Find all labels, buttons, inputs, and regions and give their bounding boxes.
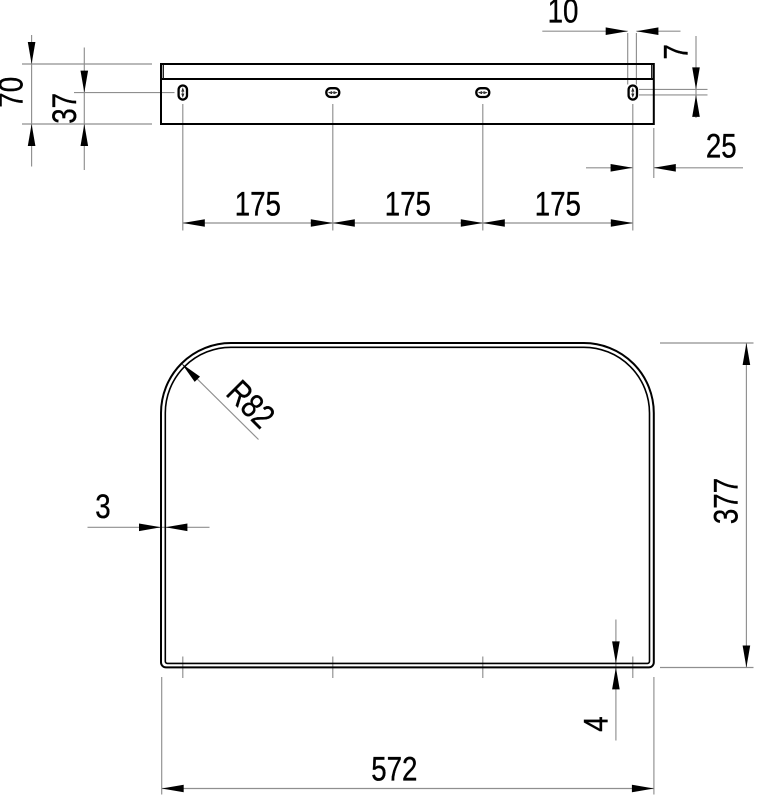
svg-text:7: 7	[657, 44, 695, 59]
svg-text:3: 3	[95, 487, 110, 525]
svg-text:R82: R82	[219, 373, 282, 436]
svg-text:10: 10	[548, 0, 579, 30]
svg-text:175: 175	[235, 185, 281, 223]
svg-text:70: 70	[0, 77, 30, 108]
svg-text:37: 37	[45, 93, 83, 124]
svg-text:4: 4	[577, 716, 615, 731]
svg-text:25: 25	[706, 127, 737, 165]
svg-text:377: 377	[707, 478, 745, 524]
svg-text:572: 572	[371, 750, 417, 788]
svg-text:175: 175	[385, 185, 431, 223]
svg-text:175: 175	[535, 185, 581, 223]
